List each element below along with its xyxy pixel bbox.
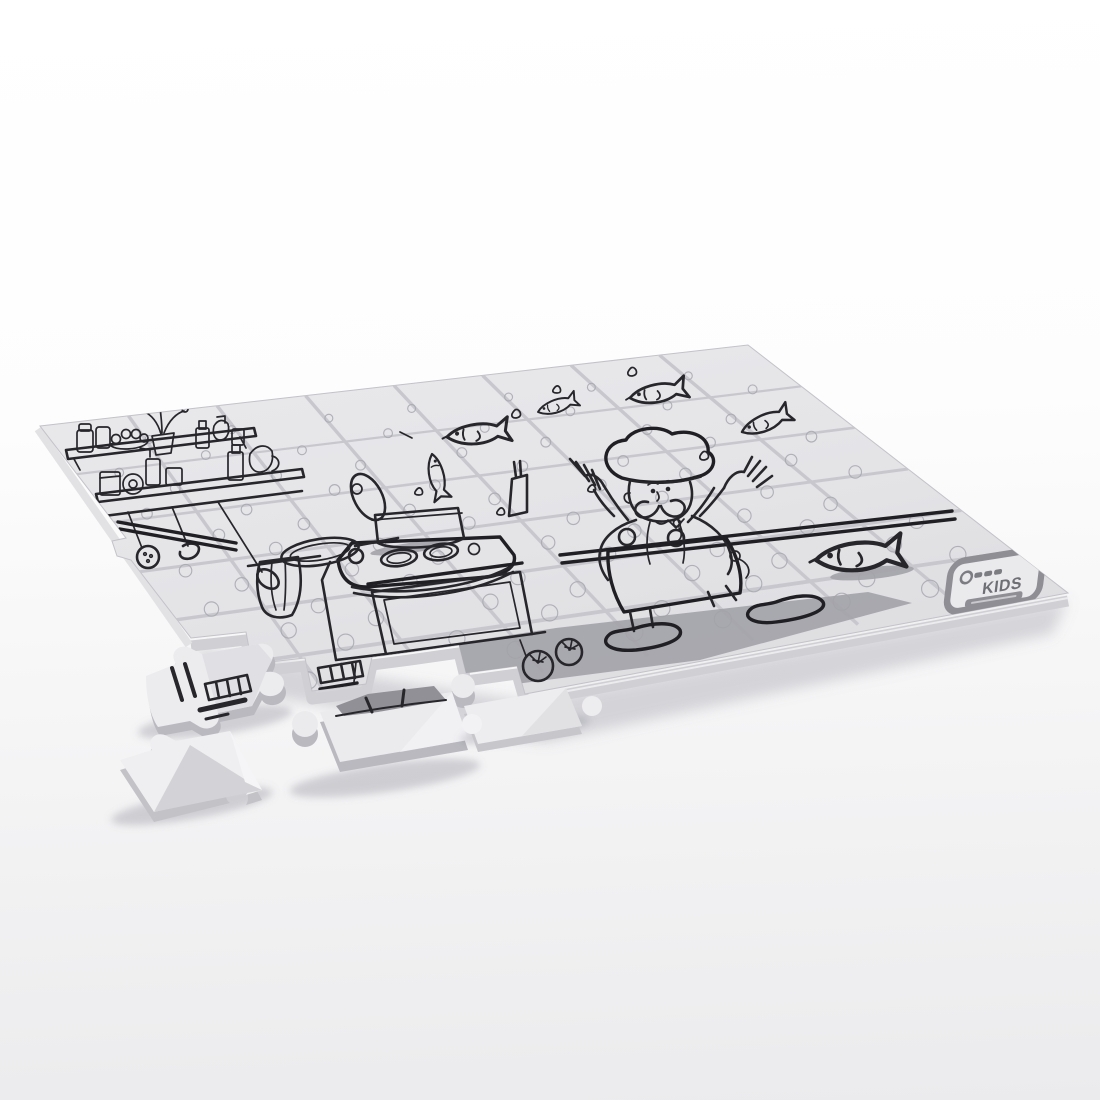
loose-piece-blank-corner xyxy=(109,731,275,833)
product-scene: Partially assembled blank colouring jigs… xyxy=(0,0,1100,1100)
loose-piece-grill-art xyxy=(136,644,294,746)
puzzle-render: KIDS xyxy=(0,0,1100,1100)
